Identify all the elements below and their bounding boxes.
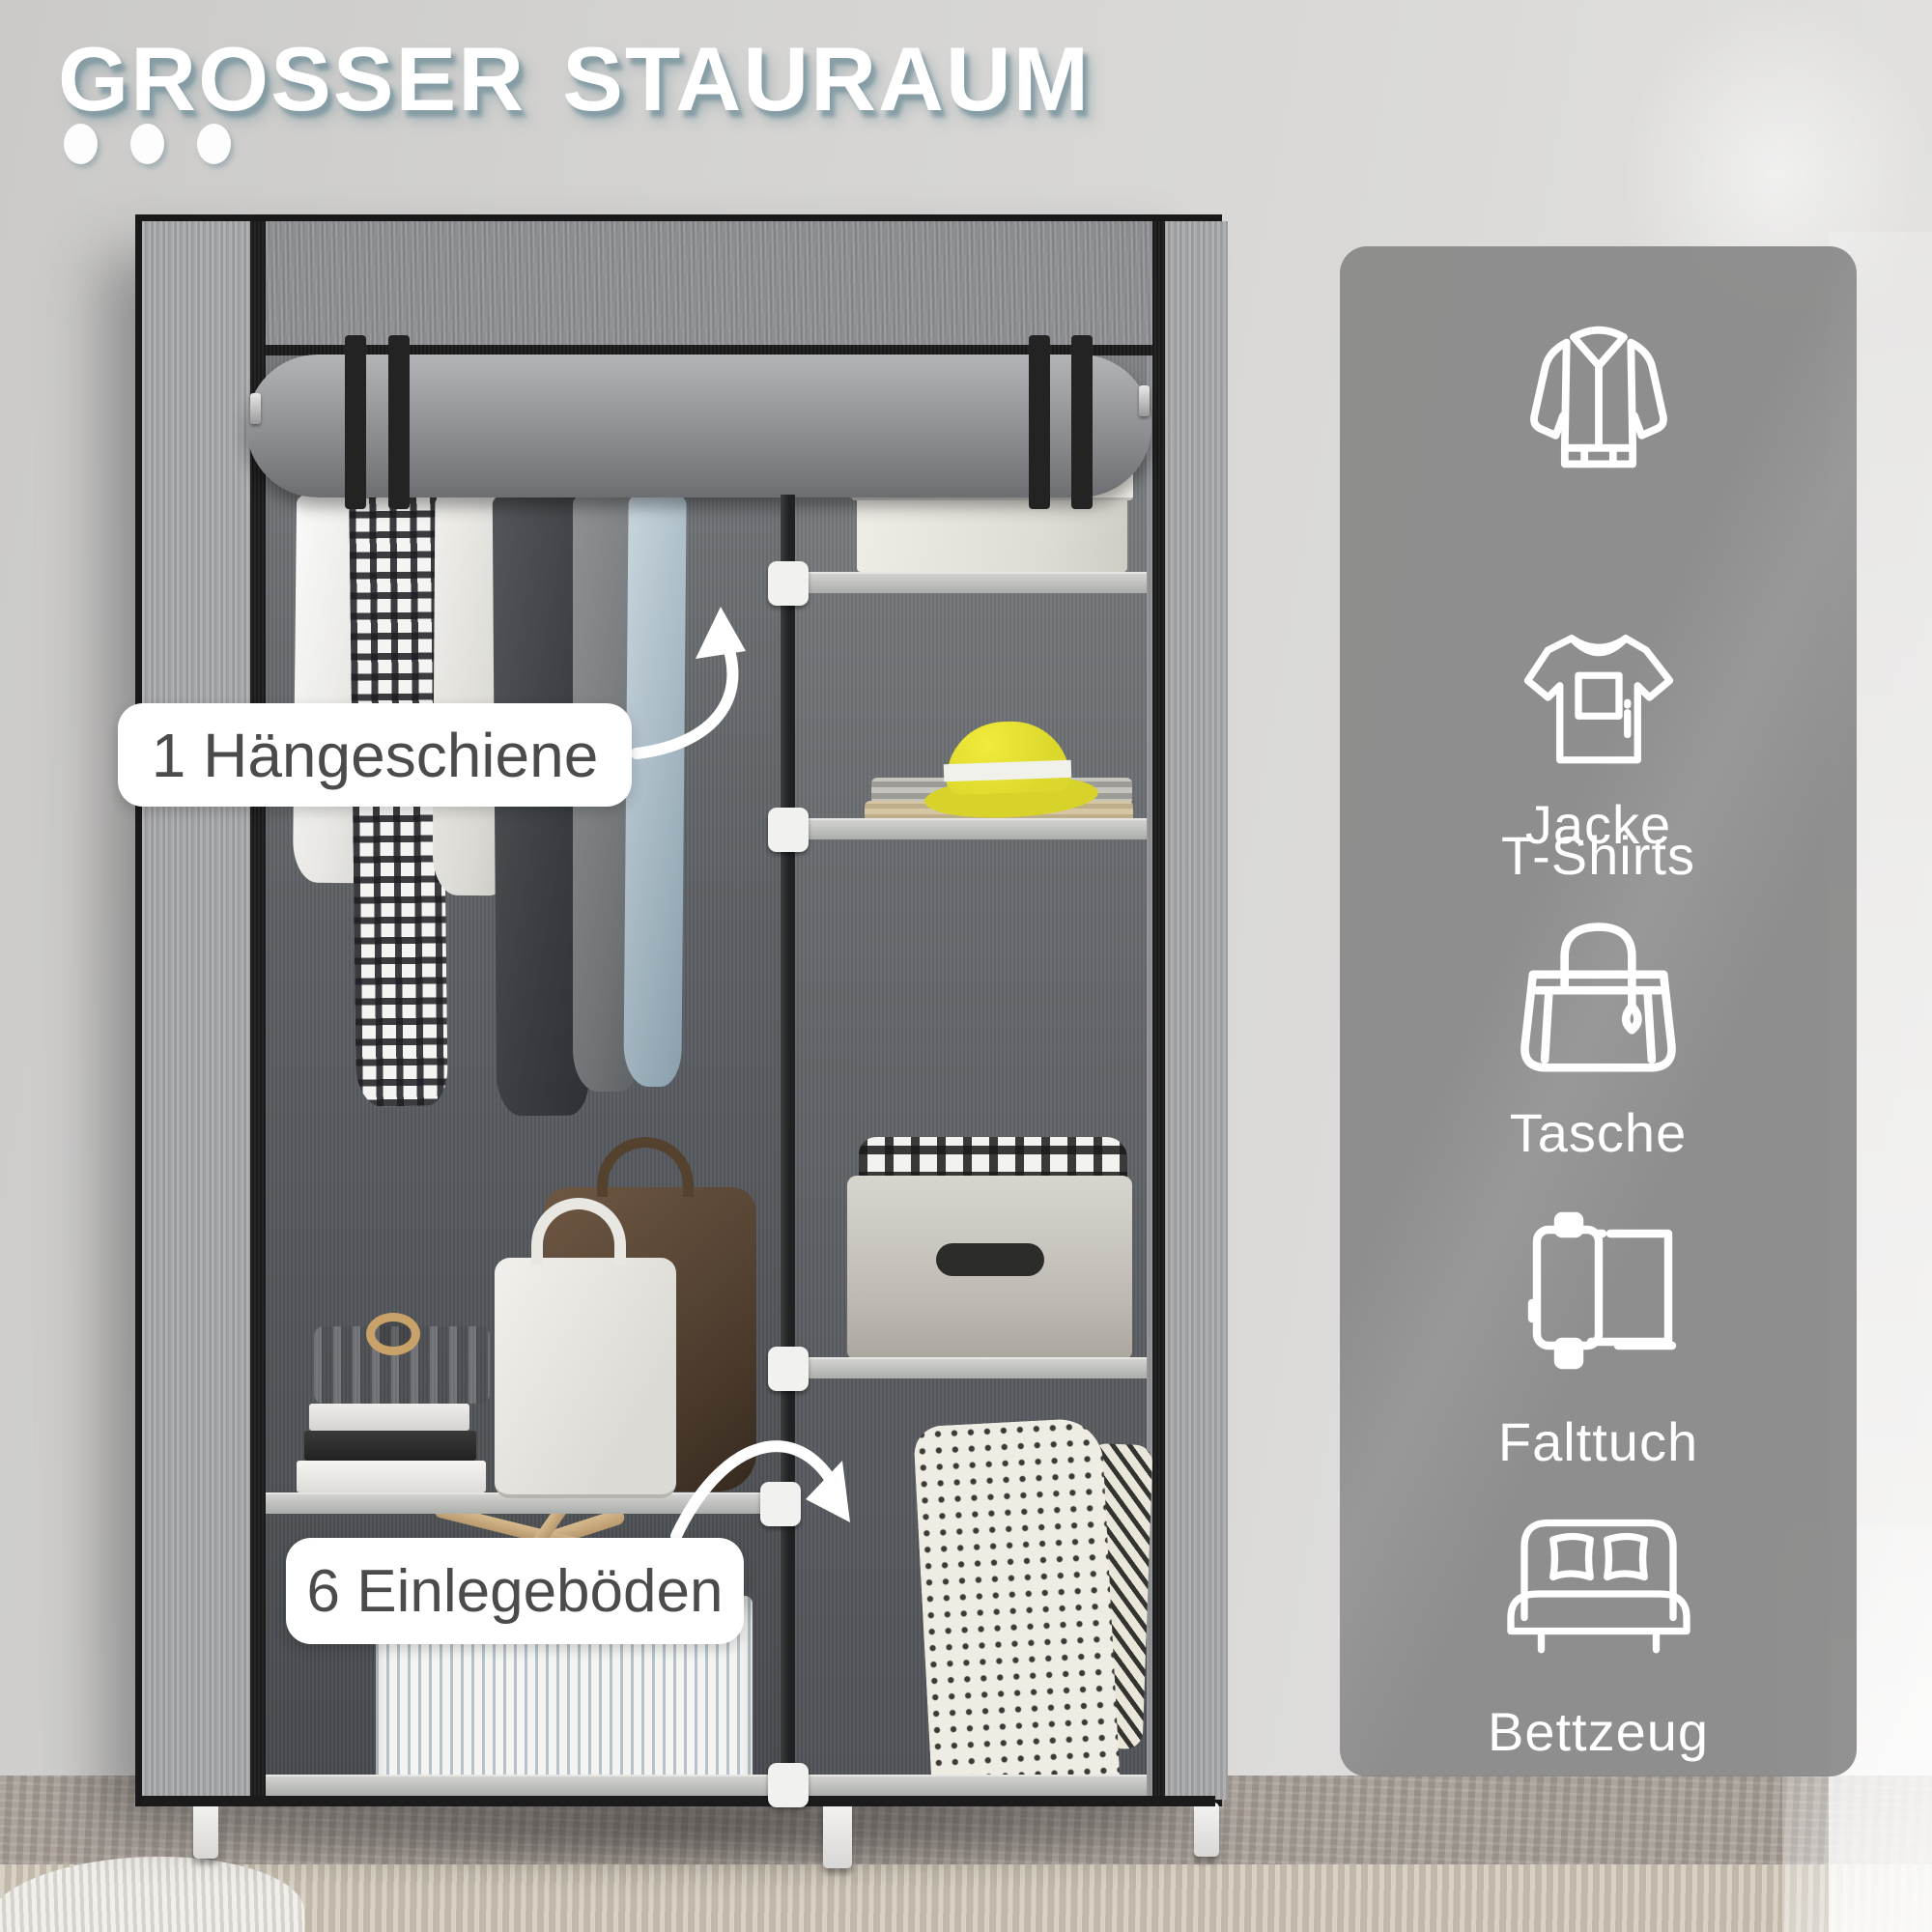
zipper-pull [250, 393, 261, 424]
shelf-1 [795, 572, 1147, 593]
wardrobe-foot [823, 1803, 852, 1868]
door-strap [345, 335, 366, 509]
pole-connector [768, 808, 809, 852]
pole-connector [760, 1482, 801, 1526]
zipper-pull [1139, 385, 1150, 416]
tshirt-icon [1512, 616, 1686, 785]
pole-connector [768, 1763, 809, 1807]
door-strap [1029, 335, 1050, 509]
book-white [297, 1461, 486, 1492]
product-marketing-image: 1 Hängeschiene 6 Einlegeböden Jacke [0, 0, 1932, 1932]
callout-shelves: 6 Einlegeböden [286, 1538, 744, 1644]
tote-bag-icon [1499, 903, 1697, 1101]
sidebar-label-tasche: Tasche [1340, 1101, 1857, 1164]
feature-sidebar: Jacke T-Shirts Tasche [1340, 246, 1857, 1776]
fabric-basket [847, 1176, 1132, 1359]
right-fabric-panel [1152, 221, 1228, 1800]
callout-hanging-rail: 1 Hängeschiene [118, 703, 632, 807]
book-black [304, 1431, 476, 1461]
callout-rail-text: 1 Hängeschiene [152, 720, 599, 791]
sidebar-label-tshirts: T-Shirts [1340, 824, 1857, 887]
belt-buckle [366, 1313, 420, 1355]
shelf-3 [795, 1357, 1147, 1378]
bottom-shelf [266, 1775, 1147, 1796]
door-strap [388, 335, 410, 509]
title-dots [64, 124, 231, 164]
title-dot [130, 124, 164, 164]
bed-icon [1497, 1488, 1700, 1660]
book-light [309, 1404, 469, 1431]
bottom-trim [142, 1796, 1215, 1806]
sidebar-label-bettzeug: Bettzeug [1340, 1700, 1857, 1763]
sidebar-label-falttuch: Falttuch [1340, 1410, 1857, 1473]
basket-handle-slot [936, 1243, 1044, 1276]
hanging-garment-green-jacket [669, 495, 783, 1131]
pole-connector [768, 561, 809, 606]
patterned-pillow [913, 1417, 1121, 1799]
wardrobe-foot [193, 1803, 218, 1859]
white-handbag [495, 1258, 676, 1498]
page-title: GROSSER STAURAUM [58, 27, 1091, 131]
center-pole [781, 495, 795, 1794]
callout-shelves-text: 6 Einlegeböden [307, 1557, 724, 1626]
rolled-up-door [246, 355, 1151, 497]
pole-connector [768, 1347, 809, 1391]
folded-cloth-icon [1502, 1191, 1695, 1384]
shelf-2 [795, 818, 1147, 839]
wardrobe-foot [1194, 1803, 1219, 1857]
title-dot [64, 124, 98, 164]
jacket-icon [1507, 314, 1690, 493]
left-fabric-panel [142, 221, 266, 1800]
top-cover-band [142, 221, 1215, 345]
door-strap [1071, 335, 1093, 509]
title-dot [197, 124, 231, 164]
